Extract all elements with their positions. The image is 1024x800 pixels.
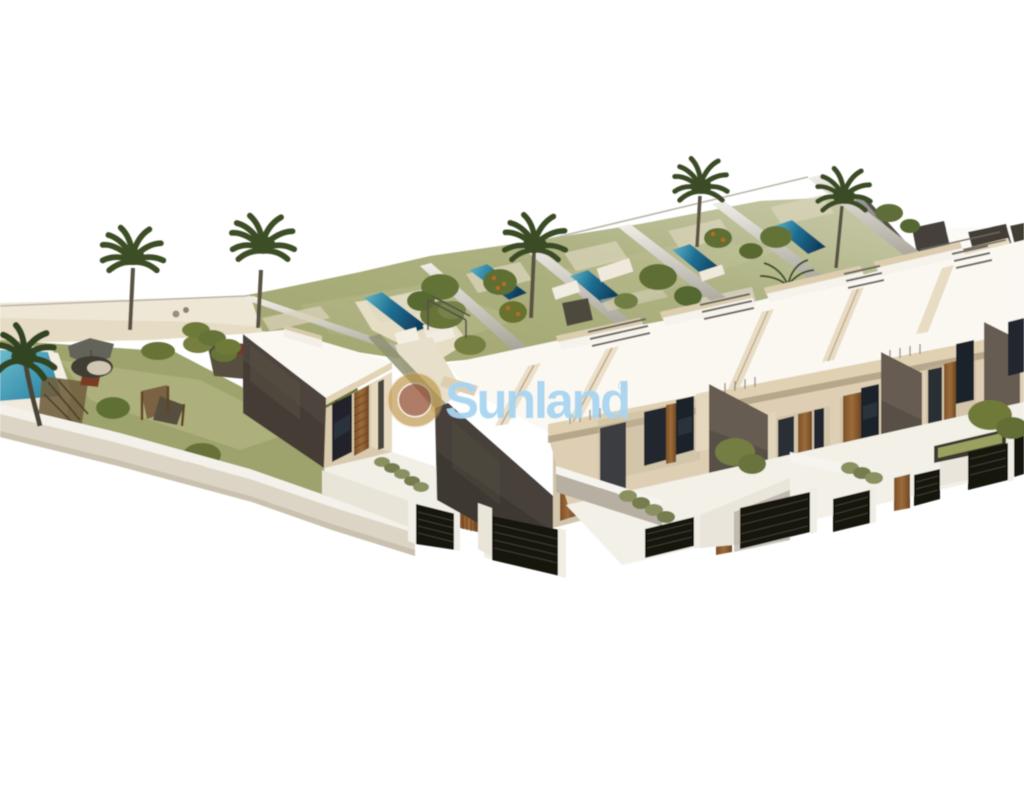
svg-text:®: ®	[618, 378, 628, 393]
svg-text:Sunland: Sunland	[445, 372, 629, 429]
